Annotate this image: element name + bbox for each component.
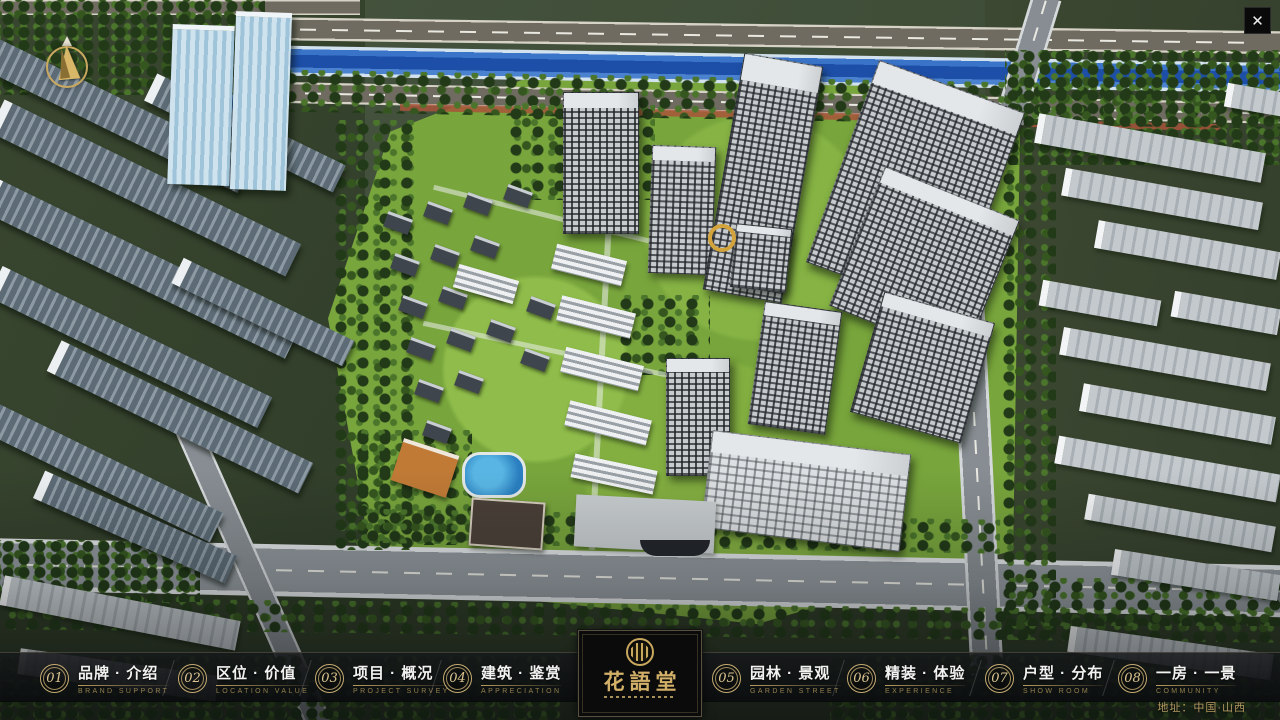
project-logo-title: 花語堂 [599, 670, 682, 693]
compass-icon [42, 34, 94, 94]
highrise-tower [730, 223, 792, 293]
nav-item-underline [1156, 685, 1236, 686]
nav-item-architecture-appreciation[interactable]: 04 建筑 · 鉴赏 APPRECIATION [443, 660, 595, 696]
nav-number-badge: 04 [443, 664, 472, 693]
gold-ring-feature [708, 224, 736, 252]
entrance-gate [640, 540, 710, 556]
nav-item-brand-intro[interactable]: 01 品牌 · 介绍 BRAND SUPPORT [40, 660, 192, 696]
nav-item-sublabel: PROJECT SURVEY [353, 688, 450, 695]
nav-item-number: 07 [991, 671, 1008, 686]
nav-item-sublabel: COMMUNITY [1156, 688, 1236, 695]
nav-item-garden-landscape[interactable]: 05 园林 · 景观 GARDEN STREET [712, 660, 864, 696]
nav-item-texts: 项目 · 概况 PROJECT SURVEY [353, 662, 450, 695]
nav-item-sublabel: GARDEN STREET [750, 688, 841, 695]
nav-item-label: 一房 · 一景 [1156, 662, 1236, 683]
nav-number-badge: 02 [178, 664, 207, 693]
nav-item-underline [1023, 685, 1103, 686]
nav-item-label: 园林 · 景观 [750, 662, 841, 683]
address-note: 地址：中国·山西 [1157, 699, 1246, 715]
nav-item-texts: 一房 · 一景 COMMUNITY [1156, 662, 1236, 695]
nav-item-number: 03 [321, 671, 338, 686]
nav-item-number: 04 [449, 671, 466, 686]
highrise-tower [563, 92, 639, 234]
nav-item-location-value[interactable]: 02 区位 · 价值 LOCATION VALUE [178, 660, 330, 696]
nav-item-texts: 区位 · 价值 LOCATION VALUE [216, 662, 309, 695]
nav-item-number: 08 [1124, 671, 1141, 686]
nav-number-badge: 07 [985, 664, 1014, 693]
nav-item-label: 精装 · 体验 [885, 662, 965, 683]
nav-item-texts: 户型 · 分布 SHOW ROOM [1023, 662, 1103, 695]
aerial-site-plan[interactable] [0, 0, 1280, 720]
nav-number-badge: 03 [315, 664, 344, 693]
nav-item-room-view[interactable]: 08 一房 · 一景 COMMUNITY [1118, 660, 1270, 696]
nav-item-underline [885, 685, 965, 686]
nav-number-badge: 05 [712, 664, 741, 693]
highrise-tower [648, 145, 716, 275]
project-logo-panel[interactable]: 花語堂 [578, 630, 702, 717]
nav-item-texts: 品牌 · 介绍 BRAND SUPPORT [78, 662, 169, 695]
nav-item-number: 01 [46, 671, 63, 686]
nav-item-label: 项目 · 概况 [353, 662, 450, 683]
close-icon: ✕ [1251, 12, 1264, 30]
nav-item-underline [78, 685, 169, 686]
logo-subtitle-line [604, 696, 676, 698]
swimming-pool [462, 452, 526, 498]
nav-item-sublabel: APPRECIATION [481, 688, 561, 695]
nav-item-label: 区位 · 价值 [216, 662, 309, 683]
nav-item-sublabel: BRAND SUPPORT [78, 688, 169, 695]
nav-item-decor-experience[interactable]: 06 精装 · 体验 EXPERIENCE [847, 660, 999, 696]
presentation-window: ✕ 01 品牌 · 介绍 BRAND SUPPORT 02 区位 · 价值 LO… [0, 0, 1280, 720]
logo-seal-icon [626, 638, 654, 666]
nav-item-number: 06 [853, 671, 870, 686]
nav-item-texts: 建筑 · 鉴赏 APPRECIATION [481, 662, 561, 695]
nav-item-sublabel: SHOW ROOM [1023, 688, 1103, 695]
glass-tower [167, 24, 235, 186]
glass-tower [230, 11, 292, 191]
nav-item-label: 户型 · 分布 [1023, 662, 1103, 683]
nav-item-sublabel: LOCATION VALUE [216, 688, 309, 695]
chinese-hall [468, 497, 545, 550]
nav-item-label: 建筑 · 鉴赏 [481, 662, 561, 683]
nav-item-number: 02 [184, 671, 201, 686]
nav-item-underline [353, 685, 450, 686]
nav-number-badge: 06 [847, 664, 876, 693]
nav-item-floorplan-distribution[interactable]: 07 户型 · 分布 SHOW ROOM [985, 660, 1137, 696]
close-button[interactable]: ✕ [1244, 7, 1271, 34]
nav-item-sublabel: EXPERIENCE [885, 688, 965, 695]
nav-item-texts: 园林 · 景观 GARDEN STREET [750, 662, 841, 695]
nav-item-label: 品牌 · 介绍 [78, 662, 169, 683]
nav-number-badge: 01 [40, 664, 69, 693]
nav-item-number: 05 [718, 671, 735, 686]
nav-item-underline [481, 685, 561, 686]
nav-number-badge: 08 [1118, 664, 1147, 693]
nav-item-underline [216, 685, 309, 686]
nav-item-texts: 精装 · 体验 EXPERIENCE [885, 662, 965, 695]
nav-item-underline [750, 685, 841, 686]
